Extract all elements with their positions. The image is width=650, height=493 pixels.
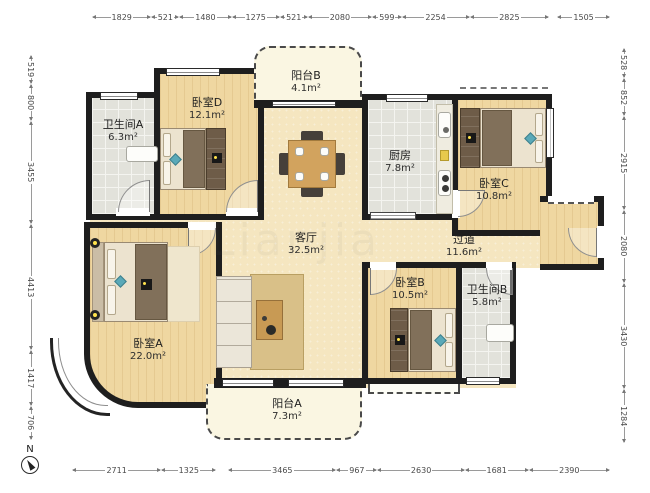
arrow-left-icon [151,15,155,19]
pillow [445,313,453,338]
bed [160,128,206,190]
faucet [443,127,449,133]
pillow [163,161,171,185]
blanket [183,130,205,188]
bed [480,108,546,168]
arrow-right-icon [606,15,610,19]
room-area: 12.1m² [189,109,225,122]
label-balcony-a: 阳台A7.3m² [272,397,302,423]
arrow-up-icon [622,389,626,393]
dimension-segment: 706 [24,406,37,440]
dimension-segment: 2711 [72,464,161,476]
pillow [107,249,116,279]
bedroom-d-door-leaf [257,180,258,212]
pillow [535,113,543,136]
pillow [163,133,171,157]
arrow-up-icon [29,55,33,59]
bathroom-b-door-leaf [512,268,513,295]
dimension-segment: 2915 [617,116,630,210]
label-hallway: 过道11.6m² [446,233,482,259]
dimension-segment: 967 [336,464,377,476]
sofa [216,276,252,368]
dimension-segment: 852 [617,78,630,116]
bedside-lamp [90,310,100,320]
arrow-up-icon [622,78,626,82]
room-area: 6.3m² [103,131,144,144]
arrow-left-icon [470,15,474,19]
arrow-left-icon [232,15,236,19]
dimension-segment: 2390 [529,464,610,476]
arrow-up-icon [29,121,33,125]
compass-north-label: N [20,444,40,455]
arrow-down-icon [29,436,33,440]
room-area: 7.8m² [385,162,415,175]
label-bedroom-a: 卧室A22.0m² [130,337,166,363]
balcony-b-door-window [272,101,336,107]
dimension-segment: 1505 [557,11,610,23]
burner [442,175,449,182]
room-area: 10.8m² [476,190,512,203]
kitchen-window [386,94,428,102]
bathroom-a-vanity [126,146,158,162]
bedside-lamp [90,238,100,248]
bedroom-b-door-leaf [370,268,371,295]
label-bedroom-b: 卧室B10.5m² [392,276,428,302]
room-name: 阳台A [272,397,302,410]
blanket [482,110,512,166]
arrow-left-icon [402,15,406,19]
room-name: 卧室B [392,276,428,289]
arrow-left-icon [372,15,376,19]
arrow-left-icon [529,468,533,472]
room-area: 10.5m² [392,289,428,302]
dimension-segment: 2080 [617,210,630,283]
dimension-segment: 3455 [24,121,37,225]
coffee-table [256,300,283,340]
room-name: 卧室C [476,177,512,190]
dimension-segment: 800 [24,84,37,120]
room-name: 卫生间B [467,283,508,296]
arrow-up-icon [622,116,626,120]
room-name: 客厅 [288,231,324,244]
dimension-segment: 1480 [179,11,231,23]
bathroom-b-window [466,377,500,385]
dimension-segment: 528 [617,48,630,78]
pillow [445,342,453,367]
label-bathroom-b: 卫生间B5.8m² [467,283,508,309]
arrow-right-icon [545,15,549,19]
dimension-segment: 3430 [617,283,630,389]
compass-icon [21,456,39,474]
pillow [535,140,543,163]
dimension-segment: 1417 [24,350,37,406]
room-name: 卧室A [130,337,166,350]
bedroom-c-window [546,108,554,158]
dimension-segment: 521 [280,11,308,23]
ac-platform [368,384,460,394]
room-name: 过道 [446,233,482,246]
arrow-left-icon [228,468,232,472]
room-area: 32.5m² [288,244,324,257]
room-area: 11.6m² [446,246,482,259]
room-name: 厨房 [385,149,415,162]
room-area: 4.1m² [291,82,321,95]
laptop [141,279,152,290]
dimension-segment: 1284 [617,389,630,443]
arrow-left-icon [72,468,76,472]
arrow-left-icon [280,15,284,19]
dimension-segment: 521 [151,11,179,23]
arrow-up-icon [622,48,626,52]
arrow-up-icon [29,224,33,228]
plate [320,172,329,181]
dimension-column-right: 5288522915208034301284 [617,48,630,443]
floor-plan: 1829521148012755212080599225428251505 27… [0,0,650,493]
pillow [107,285,116,315]
dimension-segment: 1325 [161,464,216,476]
dining-table [288,140,336,188]
room-area: 22.0m² [130,350,166,363]
arrow-left-icon [308,15,312,19]
dimension-segment: 4413 [24,224,37,350]
compass-needle-icon [25,458,36,471]
kitchen-sink [438,112,451,138]
plate [320,147,329,156]
dimension-segment: 599 [372,11,401,23]
arrow-left-icon [557,15,561,19]
entry-threshold [548,196,594,204]
label-bedroom-c: 卧室C10.8m² [476,177,512,203]
label-bedroom-d: 卧室D12.1m² [189,96,225,122]
label-balcony-b: 阳台B4.1m² [291,69,321,95]
dimension-segment: 2080 [308,11,373,23]
dimension-row-bottom: 271113253465967263016812390 [72,464,610,476]
arrow-left-icon [92,15,96,19]
label-kitchen: 厨房7.8m² [385,149,415,175]
tv [466,133,476,143]
bed [104,242,168,322]
wardrobe [390,308,408,372]
wardrobe [460,108,480,168]
cup [262,316,267,321]
balcony-a-window-left [222,379,274,387]
label-bathroom-a: 卫生间A6.3m² [103,118,144,144]
dimension-segment: 2825 [470,11,550,23]
arrow-up-icon [29,84,33,88]
dimension-segment: 519 [24,55,37,84]
arrow-down-icon [622,439,626,443]
bed-decor [169,153,182,166]
dimension-segment: 1829 [92,11,151,23]
room-name: 阳台B [291,69,321,82]
arrow-up-icon [29,350,33,354]
entry-door-leaf [596,228,597,257]
arrow-left-icon [377,468,381,472]
arrow-right-icon [212,468,216,472]
burner [442,185,449,192]
teapot [266,325,276,335]
plate [295,147,304,156]
arrow-up-icon [29,406,33,410]
plate [295,172,304,181]
arrow-left-icon [161,468,165,472]
stove [438,170,451,196]
arrow-right-icon [606,468,610,472]
tv [395,335,405,345]
room-area: 5.8m² [467,296,508,309]
dimension-column-left: 519800345544131417706 [24,55,37,440]
wardrobe [206,128,226,190]
tv [212,153,222,163]
bed [408,308,456,372]
room-name: 卫生间A [103,118,144,131]
arrow-up-icon [622,283,626,287]
bed-decor [114,275,127,288]
blanket [410,310,432,370]
spice-box [440,150,449,161]
bathroom-a-window [100,92,138,100]
dimension-row-top: 1829521148012755212080599225428251505 [92,11,610,23]
bedroom-d-window [166,68,220,76]
dimension-segment: 2254 [402,11,470,23]
arrow-left-icon [336,468,340,472]
dimension-segment: 1681 [465,464,529,476]
balcony-a-window-right [288,379,344,387]
bathroom-a-door-leaf [149,180,150,212]
dimension-segment: 1275 [232,11,280,23]
eave-dashed-line [460,87,548,89]
label-living: 客厅32.5m² [288,231,324,257]
arrow-left-icon [465,468,469,472]
dimension-segment: 3465 [228,464,336,476]
entry-door-gap [597,226,604,258]
room-name: 卧室D [189,96,225,109]
bathroom-b-tub [486,324,514,342]
dimension-segment: 2630 [377,464,464,476]
arrow-left-icon [179,15,183,19]
compass: N [20,444,40,474]
room-area: 7.3m² [272,410,302,423]
arrow-up-icon [622,210,626,214]
